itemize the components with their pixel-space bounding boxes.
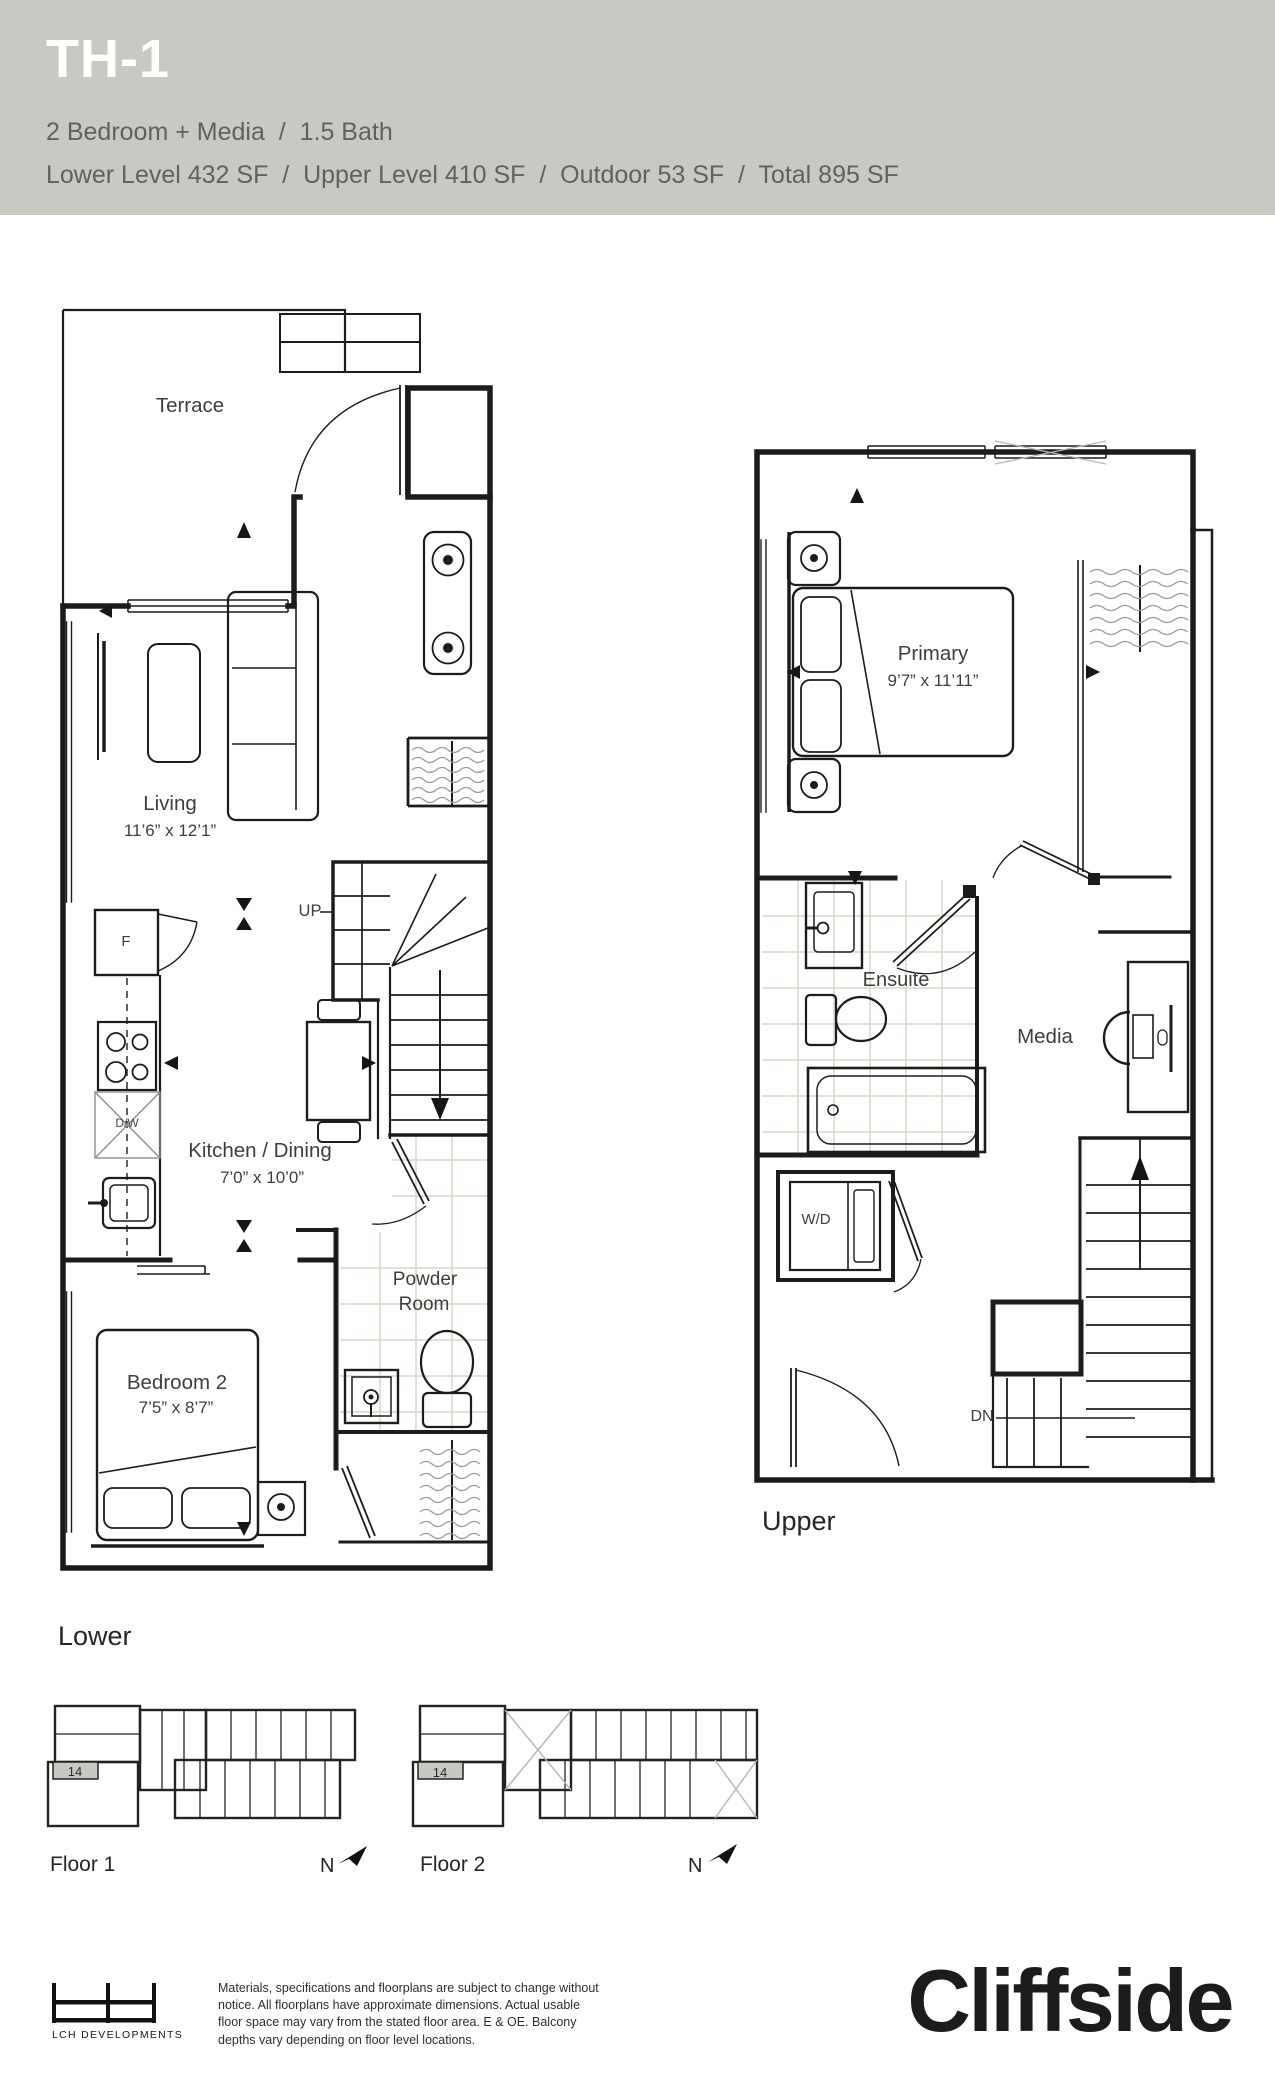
washer-dryer-label: W/D bbox=[801, 1212, 830, 1227]
keyplan1-unit-number: 14 bbox=[68, 1765, 82, 1778]
developer-name: LCH DEVELOPMENTS bbox=[52, 2029, 183, 2041]
north-arrow-icon bbox=[708, 1844, 737, 1864]
bed bbox=[97, 1330, 258, 1540]
accent-chair bbox=[148, 644, 200, 762]
area-summary: Lower Level 432 SF / Upper Level 410 SF … bbox=[46, 161, 899, 190]
living-dims: 11’6” x 12’1” bbox=[124, 822, 216, 839]
floorplan-page: TH-1 2 Bedroom + Media / 1.5 Bath Lower … bbox=[0, 0, 1275, 2100]
keyplan2-unit-number: 14 bbox=[433, 1766, 447, 1779]
bedroom-closet-hanging-clothes bbox=[420, 1450, 480, 1539]
floor2-label: Floor 2 bbox=[420, 1854, 485, 1875]
entry-door bbox=[295, 385, 406, 495]
fridge-label: F bbox=[121, 934, 130, 949]
bedroom2-furniture bbox=[91, 1330, 452, 1546]
up-label: UP bbox=[299, 903, 322, 920]
dn-label: DN bbox=[970, 1409, 993, 1425]
upper-floorplan-drawing bbox=[700, 430, 1275, 1555]
floor1-label: Floor 1 bbox=[50, 1854, 115, 1875]
header-band: TH-1 2 Bedroom + Media / 1.5 Bath Lower … bbox=[0, 0, 1275, 215]
unit-summary: 2 Bedroom + Media / 1.5 Bath bbox=[46, 118, 393, 147]
lower-floorplan-drawing bbox=[0, 295, 560, 1690]
living-furniture bbox=[98, 532, 471, 820]
bedroom2-label: Bedroom 2 bbox=[127, 1373, 227, 1394]
primary-label: Primary bbox=[898, 644, 969, 665]
cliffside-wordmark: Cliffside bbox=[907, 1957, 1232, 2045]
living-label: Living bbox=[143, 794, 197, 815]
kitchen-fixtures bbox=[88, 910, 370, 1274]
disclaimer-line: depths vary depending on floor level loc… bbox=[218, 2032, 599, 2049]
ensuite-fixtures bbox=[806, 883, 985, 1152]
desk-chair bbox=[1104, 1012, 1130, 1064]
terrace-outline bbox=[63, 310, 420, 612]
powder-room-label-line1: Powder bbox=[393, 1270, 457, 1289]
washer-dryer bbox=[790, 1178, 922, 1292]
disclaimer-line: Materials, specifications and floorplans… bbox=[218, 1980, 599, 1997]
ensuite-label: Ensuite bbox=[863, 970, 930, 990]
media-furniture bbox=[1104, 962, 1188, 1112]
page-title: TH-1 bbox=[46, 28, 170, 90]
dining-chair bbox=[318, 1000, 360, 1020]
stairs-up bbox=[320, 862, 490, 1120]
disclaimer-line: notice. All floorplans have approximate … bbox=[218, 1997, 599, 2014]
dishwasher-label: D/W bbox=[115, 1117, 138, 1129]
entry-closet-hanging-clothes bbox=[412, 748, 484, 803]
kitchen-label: Kitchen / Dining bbox=[188, 1141, 332, 1162]
primary-dims: 9’7” x 11’11” bbox=[887, 672, 978, 689]
kitchen-dims: 7’0” x 10’0” bbox=[220, 1169, 304, 1186]
north-arrow-icon bbox=[338, 1846, 367, 1866]
disclaimer-text: Materials, specifications and floorplans… bbox=[218, 1980, 599, 2049]
lch-logo-icon bbox=[40, 1975, 170, 2035]
dining-table bbox=[307, 1022, 370, 1120]
lower-level-title: Lower bbox=[58, 1623, 132, 1650]
floor1-north-letter: N bbox=[320, 1856, 334, 1876]
media-label: Media bbox=[1017, 1027, 1073, 1048]
powder-room-label-line2: Room bbox=[399, 1295, 450, 1314]
toilet bbox=[836, 997, 886, 1041]
upper-level-title: Upper bbox=[762, 1508, 836, 1535]
disclaimer-line: floor space may vary from the stated flo… bbox=[218, 2014, 599, 2031]
terrace-label: Terrace bbox=[156, 396, 224, 417]
bedroom2-dims: 7’5” x 8’7” bbox=[139, 1399, 214, 1416]
floor2-north-letter: N bbox=[688, 1856, 702, 1876]
sofa bbox=[228, 592, 318, 820]
